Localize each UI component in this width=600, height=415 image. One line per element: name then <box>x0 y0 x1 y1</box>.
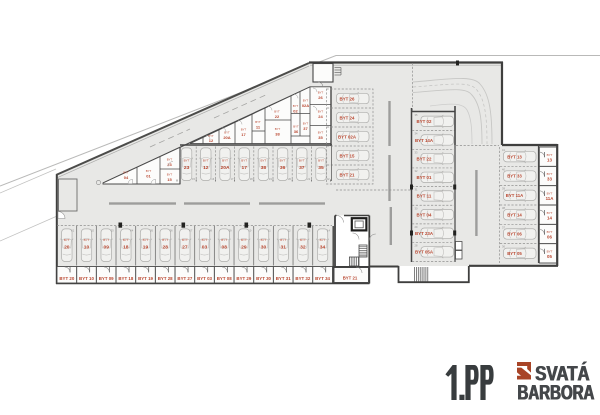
svg-text:BYT: BYT <box>280 238 286 242</box>
svg-text:BYT: BYT <box>64 238 70 242</box>
svg-text:35: 35 <box>318 165 324 171</box>
svg-text:17: 17 <box>241 165 247 171</box>
svg-text:BYT: BYT <box>222 159 228 163</box>
svg-text:BYT 27: BYT 27 <box>177 276 192 281</box>
svg-text:BYT 29: BYT 29 <box>236 276 251 281</box>
svg-text:BYT 04: BYT 04 <box>417 212 432 217</box>
svg-text:01: 01 <box>146 174 151 179</box>
svg-text:BYT: BYT <box>221 238 227 242</box>
svg-text:29: 29 <box>241 245 247 251</box>
svg-text:BARBORA: BARBORA <box>518 380 595 404</box>
svg-text:34: 34 <box>320 245 326 251</box>
svg-text:BYT: BYT <box>241 159 247 163</box>
svg-text:BYT: BYT <box>123 171 129 175</box>
svg-text:30: 30 <box>261 245 267 251</box>
svg-text:BYT 31: BYT 31 <box>276 276 291 281</box>
svg-text:BYT 21: BYT 21 <box>340 172 355 177</box>
svg-text:BYT 23A: BYT 23A <box>415 231 434 236</box>
svg-text:26: 26 <box>318 95 323 100</box>
svg-text:BYT: BYT <box>260 159 266 163</box>
svg-text:BYT: BYT <box>241 238 247 242</box>
svg-text:BYT 21: BYT 21 <box>343 276 358 281</box>
svg-text:35: 35 <box>318 135 323 140</box>
svg-text:BYT: BYT <box>123 238 129 242</box>
svg-text:BYT: BYT <box>547 172 553 176</box>
svg-text:03: 03 <box>202 245 208 251</box>
svg-text:05: 05 <box>547 254 552 259</box>
svg-text:36: 36 <box>294 129 299 134</box>
svg-text:28: 28 <box>162 245 168 251</box>
svg-text:BYT 05: BYT 05 <box>507 251 522 256</box>
svg-text:BYT 09: BYT 09 <box>99 276 114 281</box>
svg-text:13: 13 <box>547 157 552 162</box>
svg-text:17: 17 <box>241 132 246 137</box>
svg-text:12: 12 <box>209 138 214 143</box>
svg-text:20A: 20A <box>221 165 230 171</box>
svg-text:BYT 28: BYT 28 <box>158 276 173 281</box>
svg-text:BYT: BYT <box>300 238 306 242</box>
svg-text:23: 23 <box>184 165 190 171</box>
svg-text:36: 36 <box>280 165 286 171</box>
svg-text:BYT 24: BYT 24 <box>340 115 355 120</box>
svg-text:BYT: BYT <box>547 230 553 234</box>
svg-text:19: 19 <box>143 245 149 251</box>
svg-text:BYT: BYT <box>146 169 152 173</box>
svg-text:24: 24 <box>318 114 323 119</box>
svg-text:15: 15 <box>167 177 172 182</box>
svg-text:20: 20 <box>64 245 70 251</box>
svg-text:BYT 06: BYT 06 <box>507 232 522 237</box>
svg-text:22: 22 <box>275 114 280 119</box>
svg-text:BYT: BYT <box>103 238 109 242</box>
svg-text:BYT: BYT <box>203 159 209 163</box>
svg-text:BYT: BYT <box>167 173 173 177</box>
svg-text:38: 38 <box>275 131 280 136</box>
svg-text:BYT: BYT <box>299 159 305 163</box>
svg-text:BYT 33: BYT 33 <box>507 174 522 179</box>
svg-text:06: 06 <box>547 235 552 240</box>
svg-text:04: 04 <box>124 175 129 180</box>
svg-text:33: 33 <box>547 177 552 182</box>
svg-text:BYT: BYT <box>167 158 173 162</box>
svg-text:BYT 15: BYT 15 <box>340 153 355 158</box>
svg-text:BYT 14: BYT 14 <box>507 212 522 217</box>
svg-text:BYT: BYT <box>547 153 553 157</box>
svg-text:BYT 14A: BYT 14A <box>415 138 434 143</box>
svg-text:08: 08 <box>221 245 227 251</box>
svg-text:BYT 22: BYT 22 <box>417 156 432 161</box>
svg-text:BYT 01: BYT 01 <box>417 175 432 180</box>
svg-text:BYT: BYT <box>184 159 190 163</box>
svg-text:BYT 32: BYT 32 <box>295 276 310 281</box>
svg-text:BYT: BYT <box>261 238 267 242</box>
svg-text:14: 14 <box>547 215 552 220</box>
svg-text:BYT 03: BYT 03 <box>197 276 212 281</box>
svg-text:BYT 30: BYT 30 <box>256 276 271 281</box>
svg-text:BYT 05A: BYT 05A <box>415 250 434 255</box>
svg-text:BYT 11A: BYT 11A <box>506 193 523 198</box>
svg-text:12: 12 <box>203 165 209 171</box>
svg-text:BYT: BYT <box>547 250 553 254</box>
svg-text:10: 10 <box>84 245 90 251</box>
svg-text:BYT 02A: BYT 02A <box>338 134 357 139</box>
svg-text:BYT: BYT <box>143 238 149 242</box>
svg-text:BYT: BYT <box>280 159 286 163</box>
svg-text:20A: 20A <box>223 135 230 140</box>
svg-text:32: 32 <box>300 245 306 251</box>
svg-text:BYT 20: BYT 20 <box>59 276 74 281</box>
svg-text:BYT: BYT <box>182 238 188 242</box>
svg-text:BYT: BYT <box>547 192 553 196</box>
svg-text:BYT 34: BYT 34 <box>315 276 330 281</box>
svg-text:31: 31 <box>280 245 286 251</box>
svg-text:BYT 10: BYT 10 <box>79 276 94 281</box>
svg-text:BYT: BYT <box>84 238 90 242</box>
svg-text:11A: 11A <box>546 196 555 201</box>
svg-text:BYT 11: BYT 11 <box>417 194 432 199</box>
svg-text:BYT: BYT <box>162 238 168 242</box>
svg-text:BYT: BYT <box>318 159 324 163</box>
svg-text:BYT 08: BYT 08 <box>217 276 232 281</box>
svg-text:BYT: BYT <box>547 211 553 215</box>
svg-text:18: 18 <box>123 245 129 251</box>
svg-text:BYT: BYT <box>202 238 208 242</box>
svg-text:37: 37 <box>299 165 305 171</box>
svg-text:BYT 19: BYT 19 <box>138 276 153 281</box>
svg-text:BYT 13: BYT 13 <box>507 154 522 159</box>
svg-text:02: 02 <box>293 108 298 113</box>
svg-text:BYT 18: BYT 18 <box>118 276 133 281</box>
svg-text:27: 27 <box>182 245 188 251</box>
svg-text:BYT 02: BYT 02 <box>417 119 432 124</box>
svg-text:02A: 02A <box>302 103 309 108</box>
svg-text:BYT: BYT <box>320 238 326 242</box>
svg-text:37: 37 <box>303 126 308 131</box>
svg-text:38: 38 <box>261 165 267 171</box>
svg-text:09: 09 <box>103 245 109 251</box>
svg-text:BYT 26: BYT 26 <box>340 96 355 101</box>
